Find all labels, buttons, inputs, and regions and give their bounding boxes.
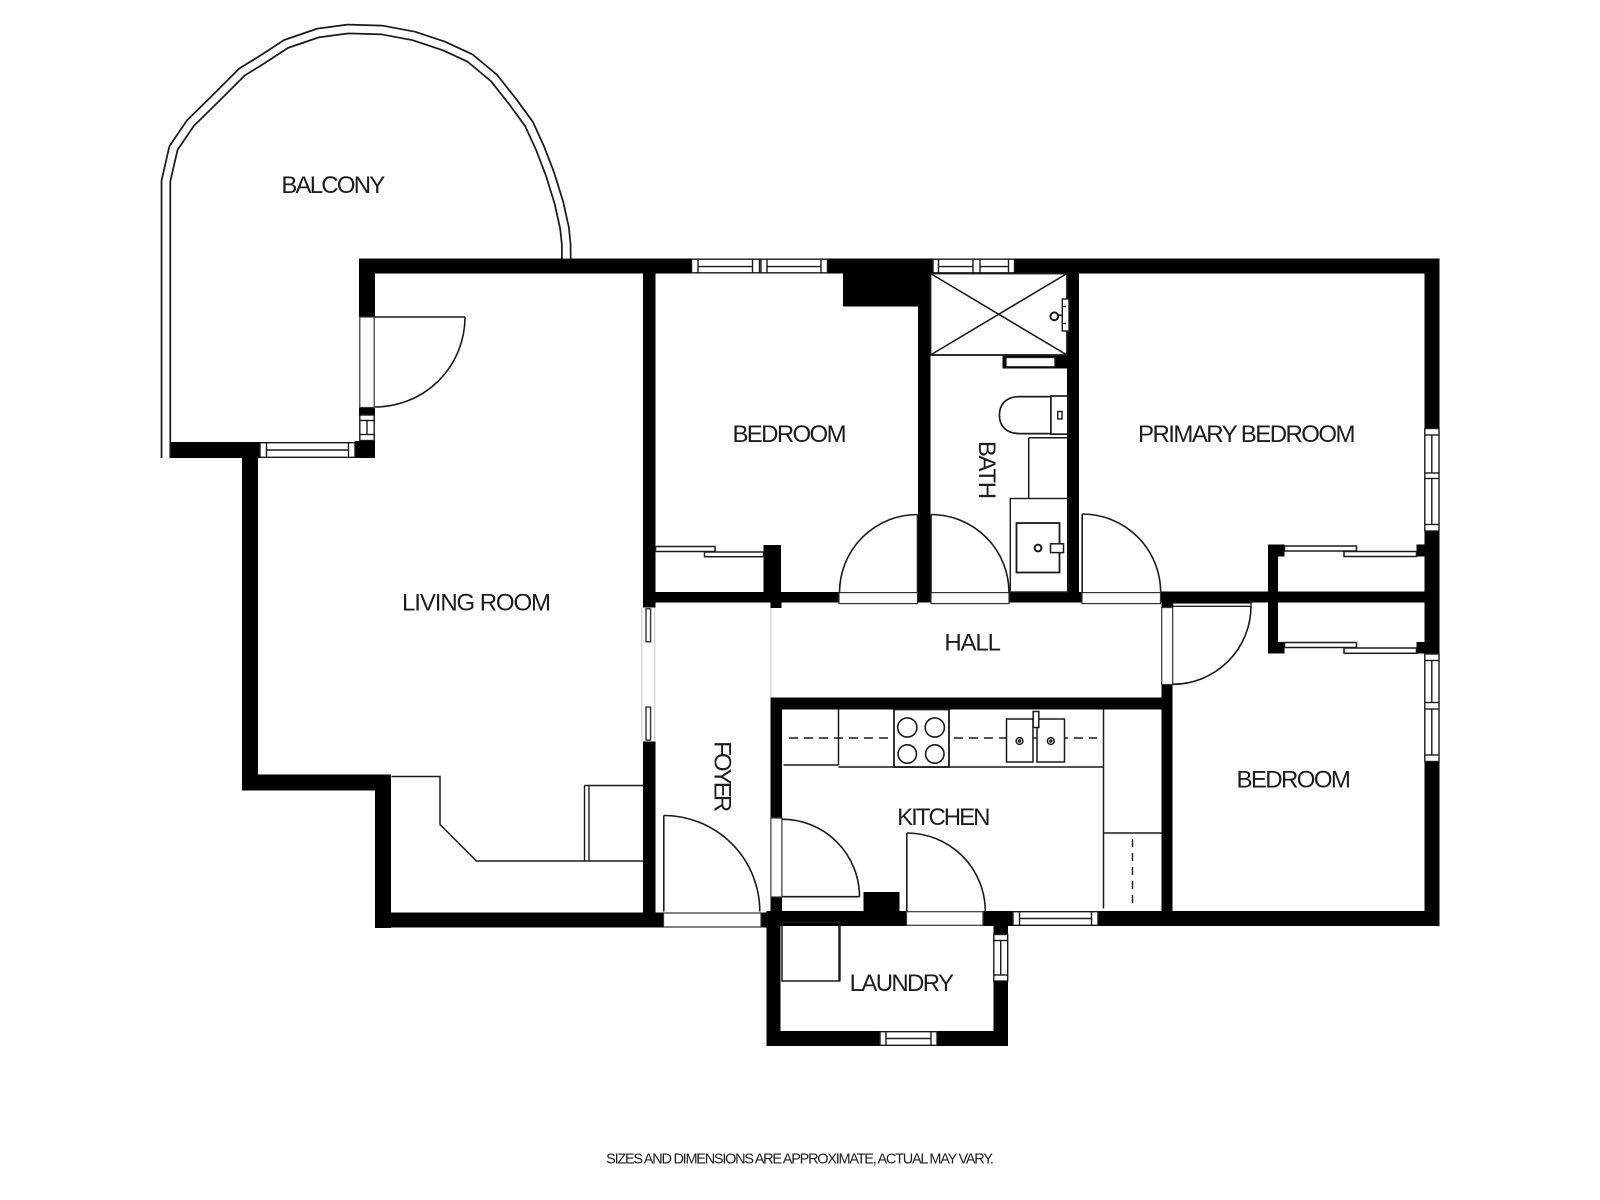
svg-text:LIVING ROOM: LIVING ROOM [402, 590, 550, 617]
svg-text:SIZES AND DIMENSIONS ARE APPRO: SIZES AND DIMENSIONS ARE APPROXIMATE, AC… [606, 1152, 993, 1168]
svg-text:KITCHEN: KITCHEN [897, 804, 989, 831]
svg-text:BALCONY: BALCONY [281, 172, 385, 199]
svg-text:HALL: HALL [944, 630, 1000, 657]
svg-text:BEDROOM: BEDROOM [732, 421, 845, 448]
svg-text:BEDROOM: BEDROOM [1236, 767, 1349, 794]
svg-text:PRIMARY BEDROOM: PRIMARY BEDROOM [1138, 421, 1354, 448]
svg-text:LAUNDRY: LAUNDRY [850, 970, 954, 997]
svg-text:BATH: BATH [973, 441, 1000, 498]
svg-text:FOYER: FOYER [709, 741, 736, 812]
